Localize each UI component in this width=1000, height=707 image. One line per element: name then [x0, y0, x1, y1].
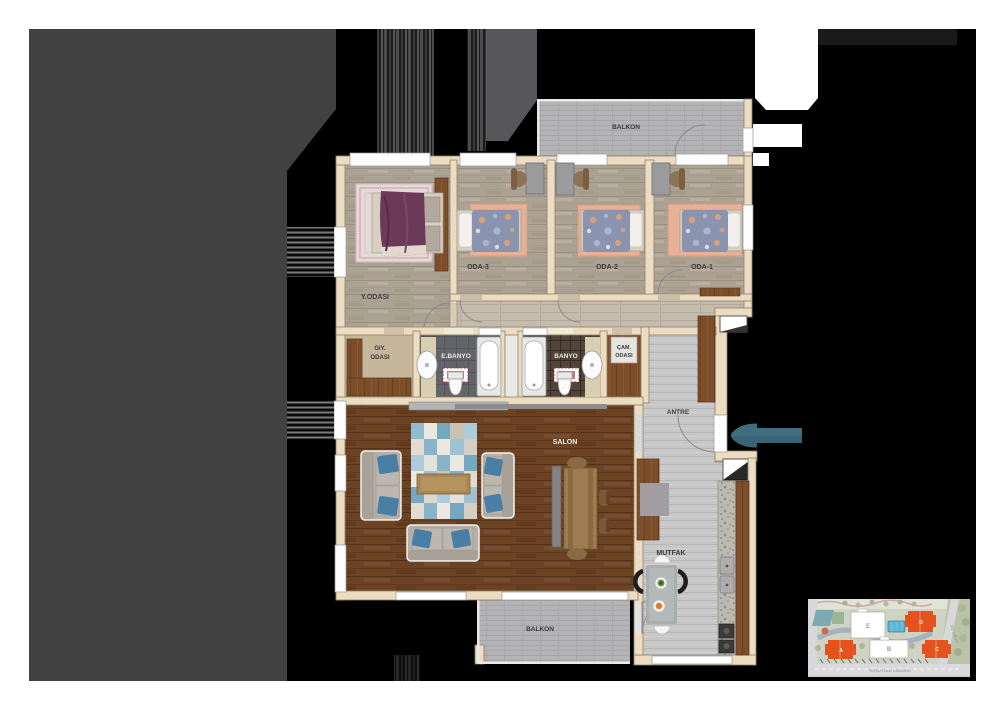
- svg-text:ODASI: ODASI: [615, 353, 633, 359]
- svg-text:ODASI: ODASI: [370, 355, 389, 361]
- svg-text:GIY.: GIY.: [374, 346, 386, 352]
- svg-text:ANTRE: ANTRE: [667, 409, 690, 416]
- svg-text:BALKON: BALKON: [526, 626, 554, 633]
- svg-text:B: B: [887, 647, 892, 653]
- svg-text:ODA-3: ODA-3: [467, 264, 489, 271]
- svg-text:SALON: SALON: [553, 439, 578, 446]
- svg-text:MUTFAK: MUTFAK: [656, 550, 685, 557]
- svg-text:Y.ODASI: Y.ODASI: [361, 294, 389, 301]
- svg-text:ODA-1: ODA-1: [691, 264, 713, 271]
- svg-text:ODA-2: ODA-2: [596, 264, 618, 271]
- svg-text:KOŞUYOLU CADDESİ: KOŞUYOLU CADDESİ: [869, 668, 910, 673]
- svg-text:D: D: [919, 620, 923, 626]
- svg-text:BANYO: BANYO: [554, 353, 577, 360]
- svg-text:A: A: [839, 648, 843, 654]
- svg-text:C: C: [935, 647, 939, 653]
- svg-text:E.BANYO: E.BANYO: [441, 353, 471, 360]
- svg-text:BALKON: BALKON: [612, 124, 640, 131]
- svg-text:ÇAM.: ÇAM.: [617, 345, 632, 351]
- svg-text:E: E: [866, 624, 870, 630]
